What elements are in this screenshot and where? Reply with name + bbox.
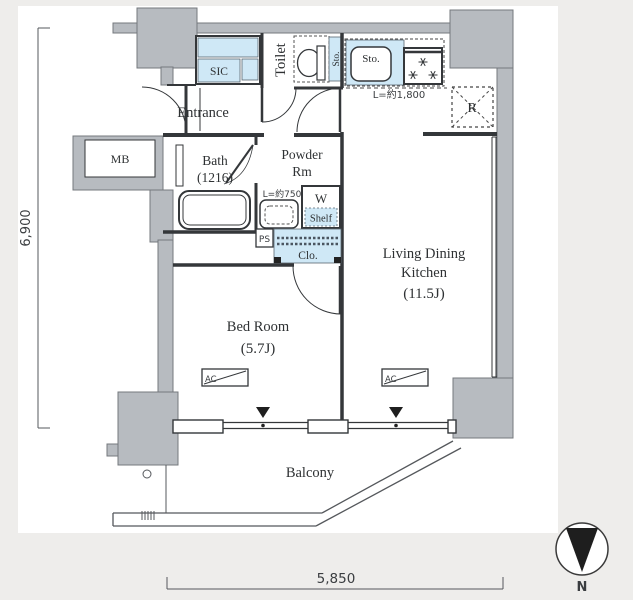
- dimension-height-label: 6,900: [19, 209, 34, 246]
- kitchen-storage-label: Sto.: [362, 53, 380, 65]
- ac-bedroom-label: AC: [205, 375, 217, 385]
- closet-door-track: [274, 257, 281, 263]
- entrance-label: Entrance: [177, 105, 229, 121]
- window-lock-dot: [394, 424, 398, 428]
- window-lock-dot: [261, 424, 265, 428]
- wall-bottom-left-column: [118, 392, 178, 465]
- south-wall-segment: [173, 420, 223, 433]
- stove-icon: [404, 48, 442, 84]
- bath-counter: [176, 145, 183, 186]
- pipe-space-label: PS: [259, 235, 270, 245]
- vanity-length-label: L=約750: [263, 188, 302, 200]
- kitchen-counter-length-label: L=約1,800: [373, 88, 426, 101]
- floor-plan-canvas: MB Entrance SIC: [0, 0, 633, 600]
- bath-size-label: (1216): [197, 170, 233, 185]
- south-wall-segment: [308, 420, 348, 433]
- sic-side-shelf: [242, 59, 258, 80]
- wall-left-upper: [150, 190, 173, 242]
- north-label: N: [577, 580, 588, 595]
- ac-ldk-label: AC: [385, 375, 397, 385]
- wall-top-left-column: [137, 8, 197, 68]
- powder-room-label2: Rm: [292, 164, 312, 179]
- closet-door-track: [334, 257, 341, 263]
- bathtub-icon: [179, 191, 250, 229]
- toilet-tank-icon: [317, 46, 325, 80]
- plan-sheet: [18, 6, 558, 533]
- bedroom-label: Bed Room: [227, 319, 290, 335]
- wall-left-lower: [158, 240, 173, 392]
- ldk-label-line1: Living Dining: [383, 246, 466, 262]
- wall-bottom-right-column: [453, 378, 513, 438]
- toilet-label: Toilet: [273, 43, 289, 77]
- balcony-label: Balcony: [286, 465, 335, 481]
- ldk-size-label: (11.5J): [403, 286, 445, 302]
- refrigerator-label: R: [467, 101, 477, 116]
- wall-bottom-left-notch: [107, 444, 118, 456]
- closet-label: Clo.: [298, 250, 318, 262]
- south-wall-segment: [448, 420, 456, 433]
- washer-label: W: [315, 191, 328, 206]
- ldk-label-line2: Kitchen: [401, 265, 448, 281]
- sic-label: SIC: [210, 66, 228, 78]
- shelf-label: Shelf: [310, 214, 333, 225]
- sic-upper-shelf: [198, 38, 258, 57]
- wall-top-right-column: [450, 10, 513, 68]
- bedroom-size-label: (5.7J): [241, 341, 276, 357]
- powder-room-label: Powder: [281, 147, 323, 162]
- meter-box-label: MB: [111, 152, 130, 166]
- dimension-width-label: 5,850: [317, 571, 356, 587]
- wall-right: [497, 68, 513, 378]
- sic-unit: SIC: [196, 36, 260, 84]
- wall-top-left-stem: [161, 67, 173, 85]
- floor-plan-drawing: MB Entrance SIC: [0, 0, 633, 600]
- bath-label: Bath: [202, 153, 228, 168]
